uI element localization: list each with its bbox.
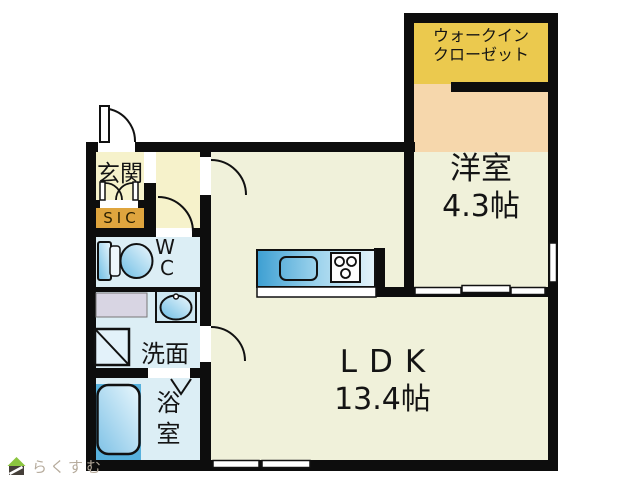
counter-icon	[96, 293, 147, 317]
wc-label-w: W	[148, 237, 182, 258]
sic-opening	[100, 200, 138, 208]
ldk-label: LDK 13.4帖	[299, 344, 466, 418]
yoshitsu-name: 洋室	[414, 150, 548, 188]
ldk-door-opening	[200, 157, 211, 195]
senmen-door-opening	[200, 326, 211, 362]
entry-opening	[98, 142, 135, 152]
entry-door-icon	[100, 106, 135, 142]
yoshitsu-window-icon	[550, 243, 557, 282]
bath-door-opening	[148, 368, 190, 378]
sliding-door-panel-icon	[511, 288, 545, 295]
bathtub-icon	[96, 384, 141, 460]
ldk-bottom-window-icon	[213, 461, 259, 468]
senmen-door-icon	[211, 327, 245, 361]
wc-label: W C	[148, 237, 182, 279]
ldk-bottom-window-icon	[262, 461, 310, 468]
yoshitsu-label: 洋室 4.3帖	[414, 150, 548, 226]
toilet-icon	[98, 242, 153, 280]
wic-label-line1: ウォークイン	[414, 26, 548, 45]
wic-label-line2: クローゼット	[414, 45, 548, 64]
rakusumu-logo: らくすむ	[6, 456, 104, 477]
kitchen-counter-edge	[257, 287, 376, 297]
wic-label: ウォークイン クローゼット	[414, 26, 548, 64]
wash-basin-icon	[156, 291, 196, 322]
washer-pan-icon	[95, 329, 129, 365]
wc-label-c: C	[152, 258, 182, 279]
senmen-label: 洗面	[130, 334, 200, 369]
sliding-door-panel-icon	[462, 286, 510, 293]
floor-plan: ウォークイン クローゼット 洋室 4.3帖 LDK 13.4帖 玄関 SIC W…	[0, 0, 640, 480]
sic-label: SIC	[96, 209, 143, 227]
ldk-size: 13.4帖	[299, 381, 466, 418]
yokushitsu-label: 浴室	[151, 383, 184, 459]
genkan-label: 玄関	[94, 154, 146, 188]
wc-door-icon	[158, 197, 193, 232]
ldk-door-icon	[211, 160, 246, 195]
sliding-door-panel-icon	[415, 288, 461, 295]
house-icon	[6, 456, 27, 477]
yoshitsu-size: 4.3帖	[414, 188, 548, 226]
stove-icon	[331, 253, 360, 282]
kitchen-counter-icon	[257, 250, 376, 297]
ldk-name: LDK	[299, 344, 466, 381]
logo-text: らくすむ	[32, 456, 104, 477]
